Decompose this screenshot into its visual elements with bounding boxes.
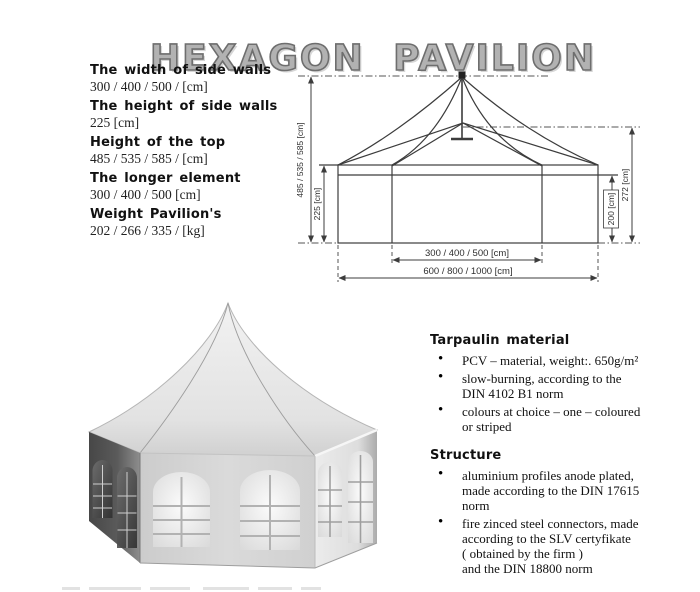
spec-value: 300 / 400 / 500 [cm] bbox=[90, 187, 300, 202]
list-item: PCV – material, weight:. 650g/m² bbox=[430, 353, 694, 368]
dim-wall-height-label: 225 [cm] bbox=[312, 188, 322, 221]
tarpaulin-bullet-list: PCV – material, weight:. 650g/m² slow-bu… bbox=[430, 353, 694, 434]
structure-bullet-list: aluminium profiles anode plated, made ac… bbox=[430, 468, 694, 576]
spec-label: The height of side walls bbox=[90, 98, 300, 115]
window-right-1 bbox=[318, 462, 342, 537]
cropped-text-sliver bbox=[62, 587, 392, 591]
spec-value: 225 [cm] bbox=[90, 115, 300, 130]
window-left-2 bbox=[117, 467, 137, 548]
spec-sheet-page: HEXAGON PAVILION The width of side walls… bbox=[0, 0, 700, 592]
list-item: slow-burning, according to the DIN 4102 … bbox=[430, 371, 694, 401]
spec-label: Height of the top bbox=[90, 134, 300, 151]
spec-item-top-height: Height of the top 485 / 535 / 585 / [cm] bbox=[90, 134, 300, 166]
list-item: fire zinced steel connectors, made accor… bbox=[430, 516, 694, 576]
dim-frame-height-label: 272 [cm] bbox=[620, 169, 630, 202]
dim-inner-width-label: 300 / 400 / 500 [cm] bbox=[425, 248, 509, 259]
dim-total-width-label: 600 / 800 / 1000 [cm] bbox=[423, 266, 512, 277]
window-right-2 bbox=[348, 451, 373, 543]
dim-eave-height-label: 200 [cm] bbox=[606, 193, 616, 226]
spec-label: The width of side walls bbox=[90, 62, 300, 79]
spec-item-wall-height: The height of side walls 225 [cm] bbox=[90, 98, 300, 130]
window-front-1 bbox=[153, 472, 210, 547]
materials-column: Tarpaulin material PCV – material, weigh… bbox=[430, 333, 694, 590]
technical-elevation-drawing: 485 / 535 / 585 [cm] 225 [cm] 200 [cm] 2… bbox=[295, 60, 645, 300]
spec-value: 300 / 400 / 500 / [cm] bbox=[90, 79, 300, 94]
dim-total-height-label: 485 / 535 / 585 [cm] bbox=[295, 122, 305, 197]
spec-value: 485 / 535 / 585 / [cm] bbox=[90, 151, 300, 166]
pavilion-outline bbox=[319, 72, 618, 244]
spec-value: 202 / 266 / 335 / [kg] bbox=[90, 223, 300, 238]
spec-item-longer-element: The longer element 300 / 400 / 500 [cm] bbox=[90, 170, 300, 202]
window-front-2 bbox=[240, 470, 300, 550]
pavilion-3d-render bbox=[40, 300, 420, 592]
tarpaulin-heading: Tarpaulin material bbox=[430, 333, 694, 348]
list-item: aluminium profiles anode plated, made ac… bbox=[430, 468, 694, 513]
spec-list: The width of side walls 300 / 400 / 500 … bbox=[90, 62, 300, 242]
list-item: colours at choice – one – coloured or st… bbox=[430, 404, 694, 434]
spec-item-width: The width of side walls 300 / 400 / 500 … bbox=[90, 62, 300, 94]
spec-label: Weight Pavilion's bbox=[90, 206, 300, 223]
spec-label: The longer element bbox=[90, 170, 300, 187]
tent-roof bbox=[89, 303, 377, 459]
structure-heading: Structure bbox=[430, 448, 694, 463]
spec-item-weight: Weight Pavilion's 202 / 266 / 335 / [kg] bbox=[90, 206, 300, 238]
window-left-1 bbox=[93, 460, 113, 518]
